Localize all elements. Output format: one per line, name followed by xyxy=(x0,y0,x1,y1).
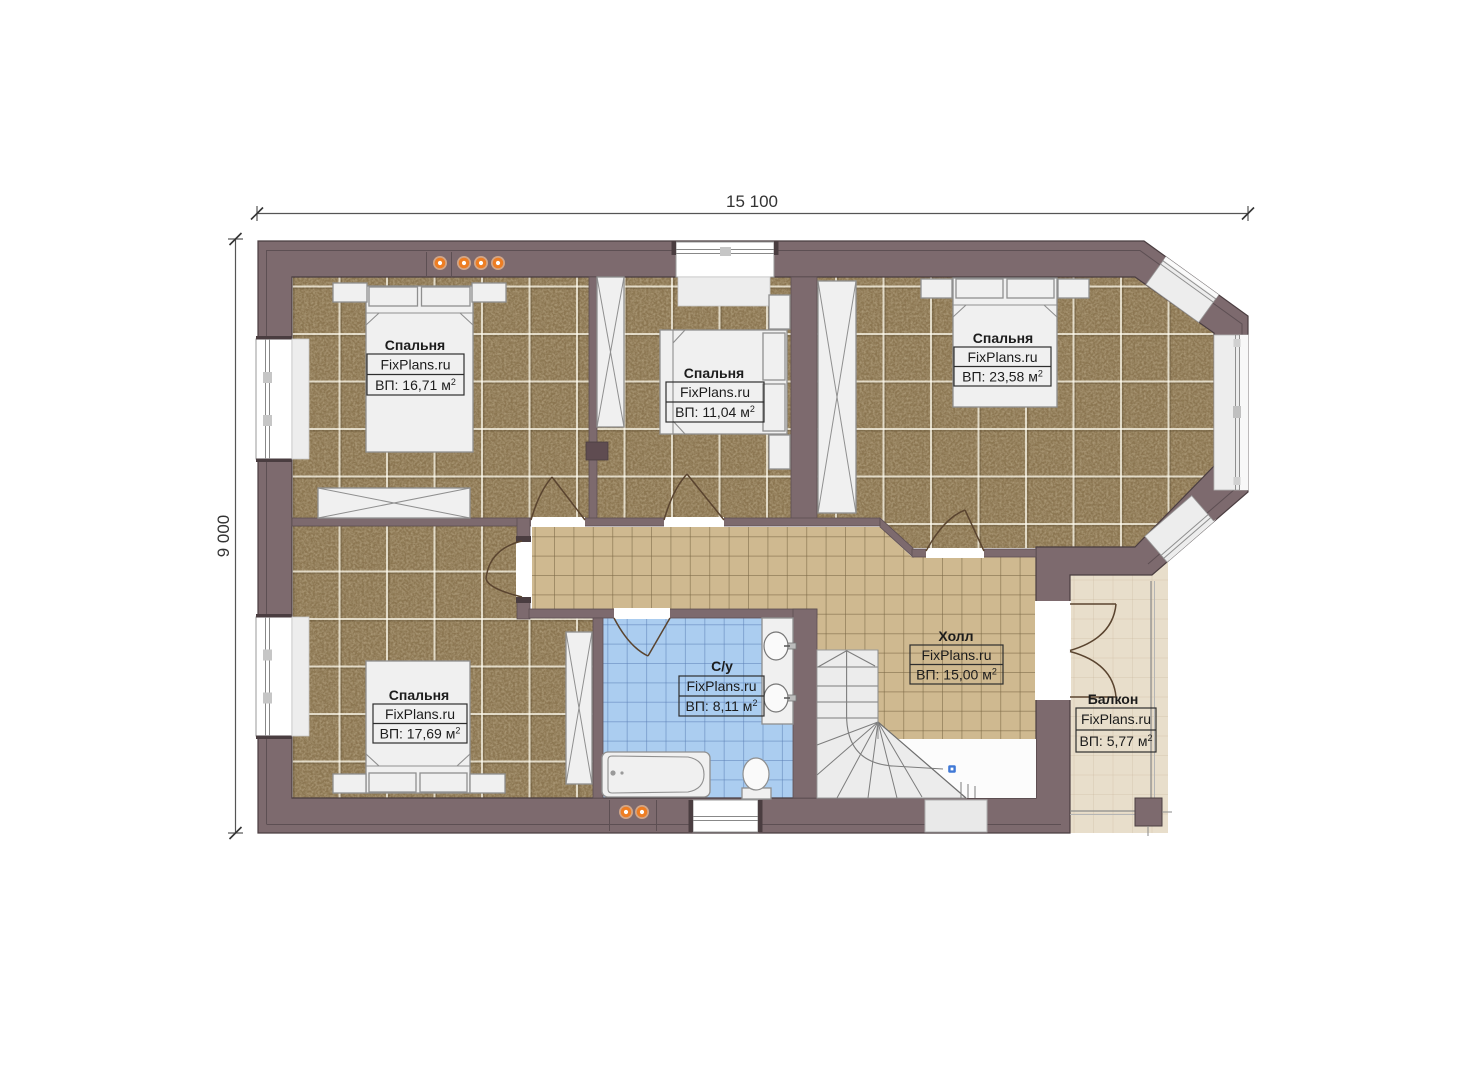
svg-text:FixPlans.ru: FixPlans.ru xyxy=(1081,711,1151,727)
svg-text:Балкон: Балкон xyxy=(1088,691,1139,707)
svg-text:9 000: 9 000 xyxy=(214,515,233,558)
svg-text:FixPlans.ru: FixPlans.ru xyxy=(921,647,991,663)
svg-text:ВП: 8,11 м2: ВП: 8,11 м2 xyxy=(686,698,758,714)
svg-text:Спальня: Спальня xyxy=(684,365,744,381)
svg-text:FixPlans.ru: FixPlans.ru xyxy=(680,384,750,400)
svg-text:ВП: 23,58 м2: ВП: 23,58 м2 xyxy=(962,368,1043,384)
svg-text:FixPlans.ru: FixPlans.ru xyxy=(686,678,756,694)
svg-text:ВП: 16,71 м2: ВП: 16,71 м2 xyxy=(375,377,456,393)
svg-text:ВП: 11,04 м2: ВП: 11,04 м2 xyxy=(675,404,755,420)
svg-text:ВП: 17,69 м2: ВП: 17,69 м2 xyxy=(380,726,461,742)
svg-text:15 100: 15 100 xyxy=(726,192,778,211)
svg-text:Спальня: Спальня xyxy=(385,337,445,353)
svg-text:FixPlans.ru: FixPlans.ru xyxy=(967,349,1037,365)
svg-text:Спальня: Спальня xyxy=(973,330,1033,346)
svg-text:FixPlans.ru: FixPlans.ru xyxy=(380,356,450,372)
svg-text:FixPlans.ru: FixPlans.ru xyxy=(385,706,455,722)
svg-text:Холл: Холл xyxy=(938,628,973,644)
svg-text:С/у: С/у xyxy=(711,658,733,674)
svg-text:ВП: 15,00 м2: ВП: 15,00 м2 xyxy=(916,667,997,683)
svg-text:Спальня: Спальня xyxy=(389,687,449,703)
svg-text:ВП: 5,77 м2: ВП: 5,77 м2 xyxy=(1080,733,1153,749)
